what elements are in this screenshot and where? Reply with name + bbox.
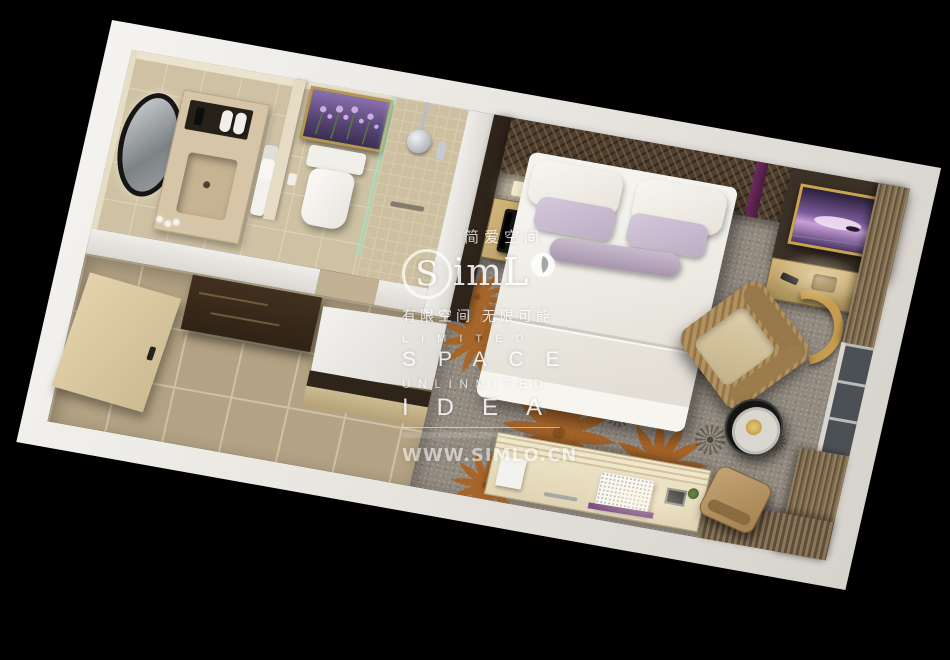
towel-roll	[232, 112, 248, 135]
amenity-tray	[184, 100, 253, 140]
purple-ribbon-accent	[745, 161, 769, 217]
watermark-website: WWW.SIMLO.CN	[402, 445, 587, 466]
watermark-fineprint	[402, 432, 524, 438]
watermark: 简爱空间 S imL 有限空间 无限可能 LIMITED SPACE UNLIN…	[402, 226, 587, 466]
watermark-rule	[402, 427, 560, 428]
watermark-line-idea: IDEA	[402, 394, 587, 422]
towel-roll	[218, 110, 234, 133]
watermark-line-limited: LIMITED	[402, 333, 587, 345]
logo-leaf-ball-icon	[530, 252, 556, 282]
simlo-logo: S imL	[402, 249, 587, 299]
drawer-handle	[544, 492, 578, 502]
logo-s-circle: S	[402, 249, 452, 299]
door-handle	[146, 346, 156, 361]
scene-root: 简爱空间 S imL 有限空间 无限可能 LIMITED SPACE UNLIN…	[0, 0, 950, 660]
watermark-line-space: SPACE	[402, 348, 587, 372]
watermark-chinese-tagline: 有限空间 无限可能	[402, 306, 587, 326]
logo-iml-text: imL	[453, 249, 529, 295]
toiletry-bottle	[193, 107, 205, 126]
sink-basin	[176, 152, 239, 221]
watermark-chinese-title: 简爱空间	[464, 226, 587, 247]
watermark-line-unlimited: UNLINMITED	[402, 377, 587, 391]
sink-drain	[202, 181, 210, 189]
